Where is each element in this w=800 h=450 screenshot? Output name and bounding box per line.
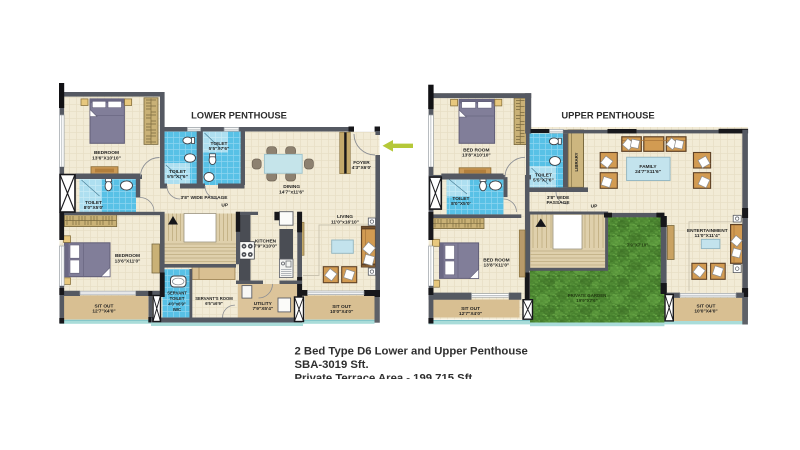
svg-text:LIBRARY: LIBRARY bbox=[574, 152, 579, 171]
svg-text:UPPER PENTHOUSE: UPPER PENTHOUSE bbox=[561, 109, 654, 120]
svg-text:7'9"X5'4": 7'9"X5'4" bbox=[252, 306, 273, 312]
svg-text:PASSAGE: PASSAGE bbox=[546, 200, 570, 206]
svg-text:13'8"X10'10": 13'8"X10'10" bbox=[462, 153, 491, 159]
svg-text:2 Bed Type D6 Lower and Upper: 2 Bed Type D6 Lower and Upper Penthouse bbox=[295, 346, 528, 358]
svg-text:8'0"X5'0': 8'0"X5'0' bbox=[84, 205, 104, 211]
svg-text:7'9"X7'10": 7'9"X7'10" bbox=[627, 243, 648, 248]
svg-text:SBA-3019 Sft.: SBA-3019 Sft. bbox=[295, 359, 369, 371]
svg-text:LOWER PENTHOUSE: LOWER PENTHOUSE bbox=[191, 109, 287, 120]
svg-text:13'8"X11'0": 13'8"X11'0" bbox=[484, 263, 510, 269]
svg-text:BEDROOM: BEDROOM bbox=[94, 150, 119, 156]
svg-text:TOILET: TOILET bbox=[170, 296, 185, 301]
svg-text:11'0"X11'4": 11'0"X11'4" bbox=[695, 233, 721, 239]
svg-text:13'6"X11'0": 13'6"X11'0" bbox=[115, 259, 141, 265]
svg-text:IWC: IWC bbox=[173, 307, 181, 312]
svg-text:5'5"X7'6": 5'5"X7'6" bbox=[209, 146, 230, 152]
svg-text:11'0"x16'10": 11'0"x16'10" bbox=[331, 220, 359, 226]
svg-text:SERVANT: SERVANT bbox=[167, 291, 187, 296]
svg-text:6'5"x6'9": 6'5"x6'9" bbox=[205, 301, 223, 306]
svg-text:4'3"X6'0': 4'3"X6'0' bbox=[352, 165, 372, 171]
svg-text:UP: UP bbox=[221, 203, 228, 209]
svg-text:LIVING: LIVING bbox=[337, 214, 353, 220]
svg-text:4'0"x6'9": 4'0"x6'9" bbox=[168, 302, 186, 307]
svg-text:DINING: DINING bbox=[283, 184, 300, 190]
svg-text:19'9"X7'6": 19'9"X7'6" bbox=[576, 298, 597, 303]
svg-text:UP: UP bbox=[591, 204, 598, 210]
svg-text:8'0"X5'0': 8'0"X5'0' bbox=[451, 201, 471, 207]
svg-text:12'7"X4'0": 12'7"X4'0" bbox=[459, 311, 482, 317]
svg-text:24'7"X11'6": 24'7"X11'6" bbox=[635, 169, 661, 175]
svg-text:12'7"X4'0": 12'7"X4'0" bbox=[92, 309, 115, 315]
svg-text:10'0"X4'0": 10'0"X4'0" bbox=[330, 309, 353, 315]
svg-text:13'6"X10'10": 13'6"X10'10" bbox=[92, 156, 121, 162]
svg-text:7'9"X10'0": 7'9"X10'0" bbox=[254, 244, 277, 250]
svg-text:10'0"X4'0": 10'0"X4'0" bbox=[694, 309, 717, 315]
svg-text:5'5"X7'6": 5'5"X7'6" bbox=[533, 178, 554, 184]
svg-text:BEDROOM: BEDROOM bbox=[115, 253, 140, 259]
svg-text:5'5"X7'6": 5'5"X7'6" bbox=[167, 174, 188, 180]
svg-text:3'8" WIDE PASSAGE: 3'8" WIDE PASSAGE bbox=[180, 195, 228, 201]
svg-text:14'7"x11'6": 14'7"x11'6" bbox=[279, 190, 304, 196]
